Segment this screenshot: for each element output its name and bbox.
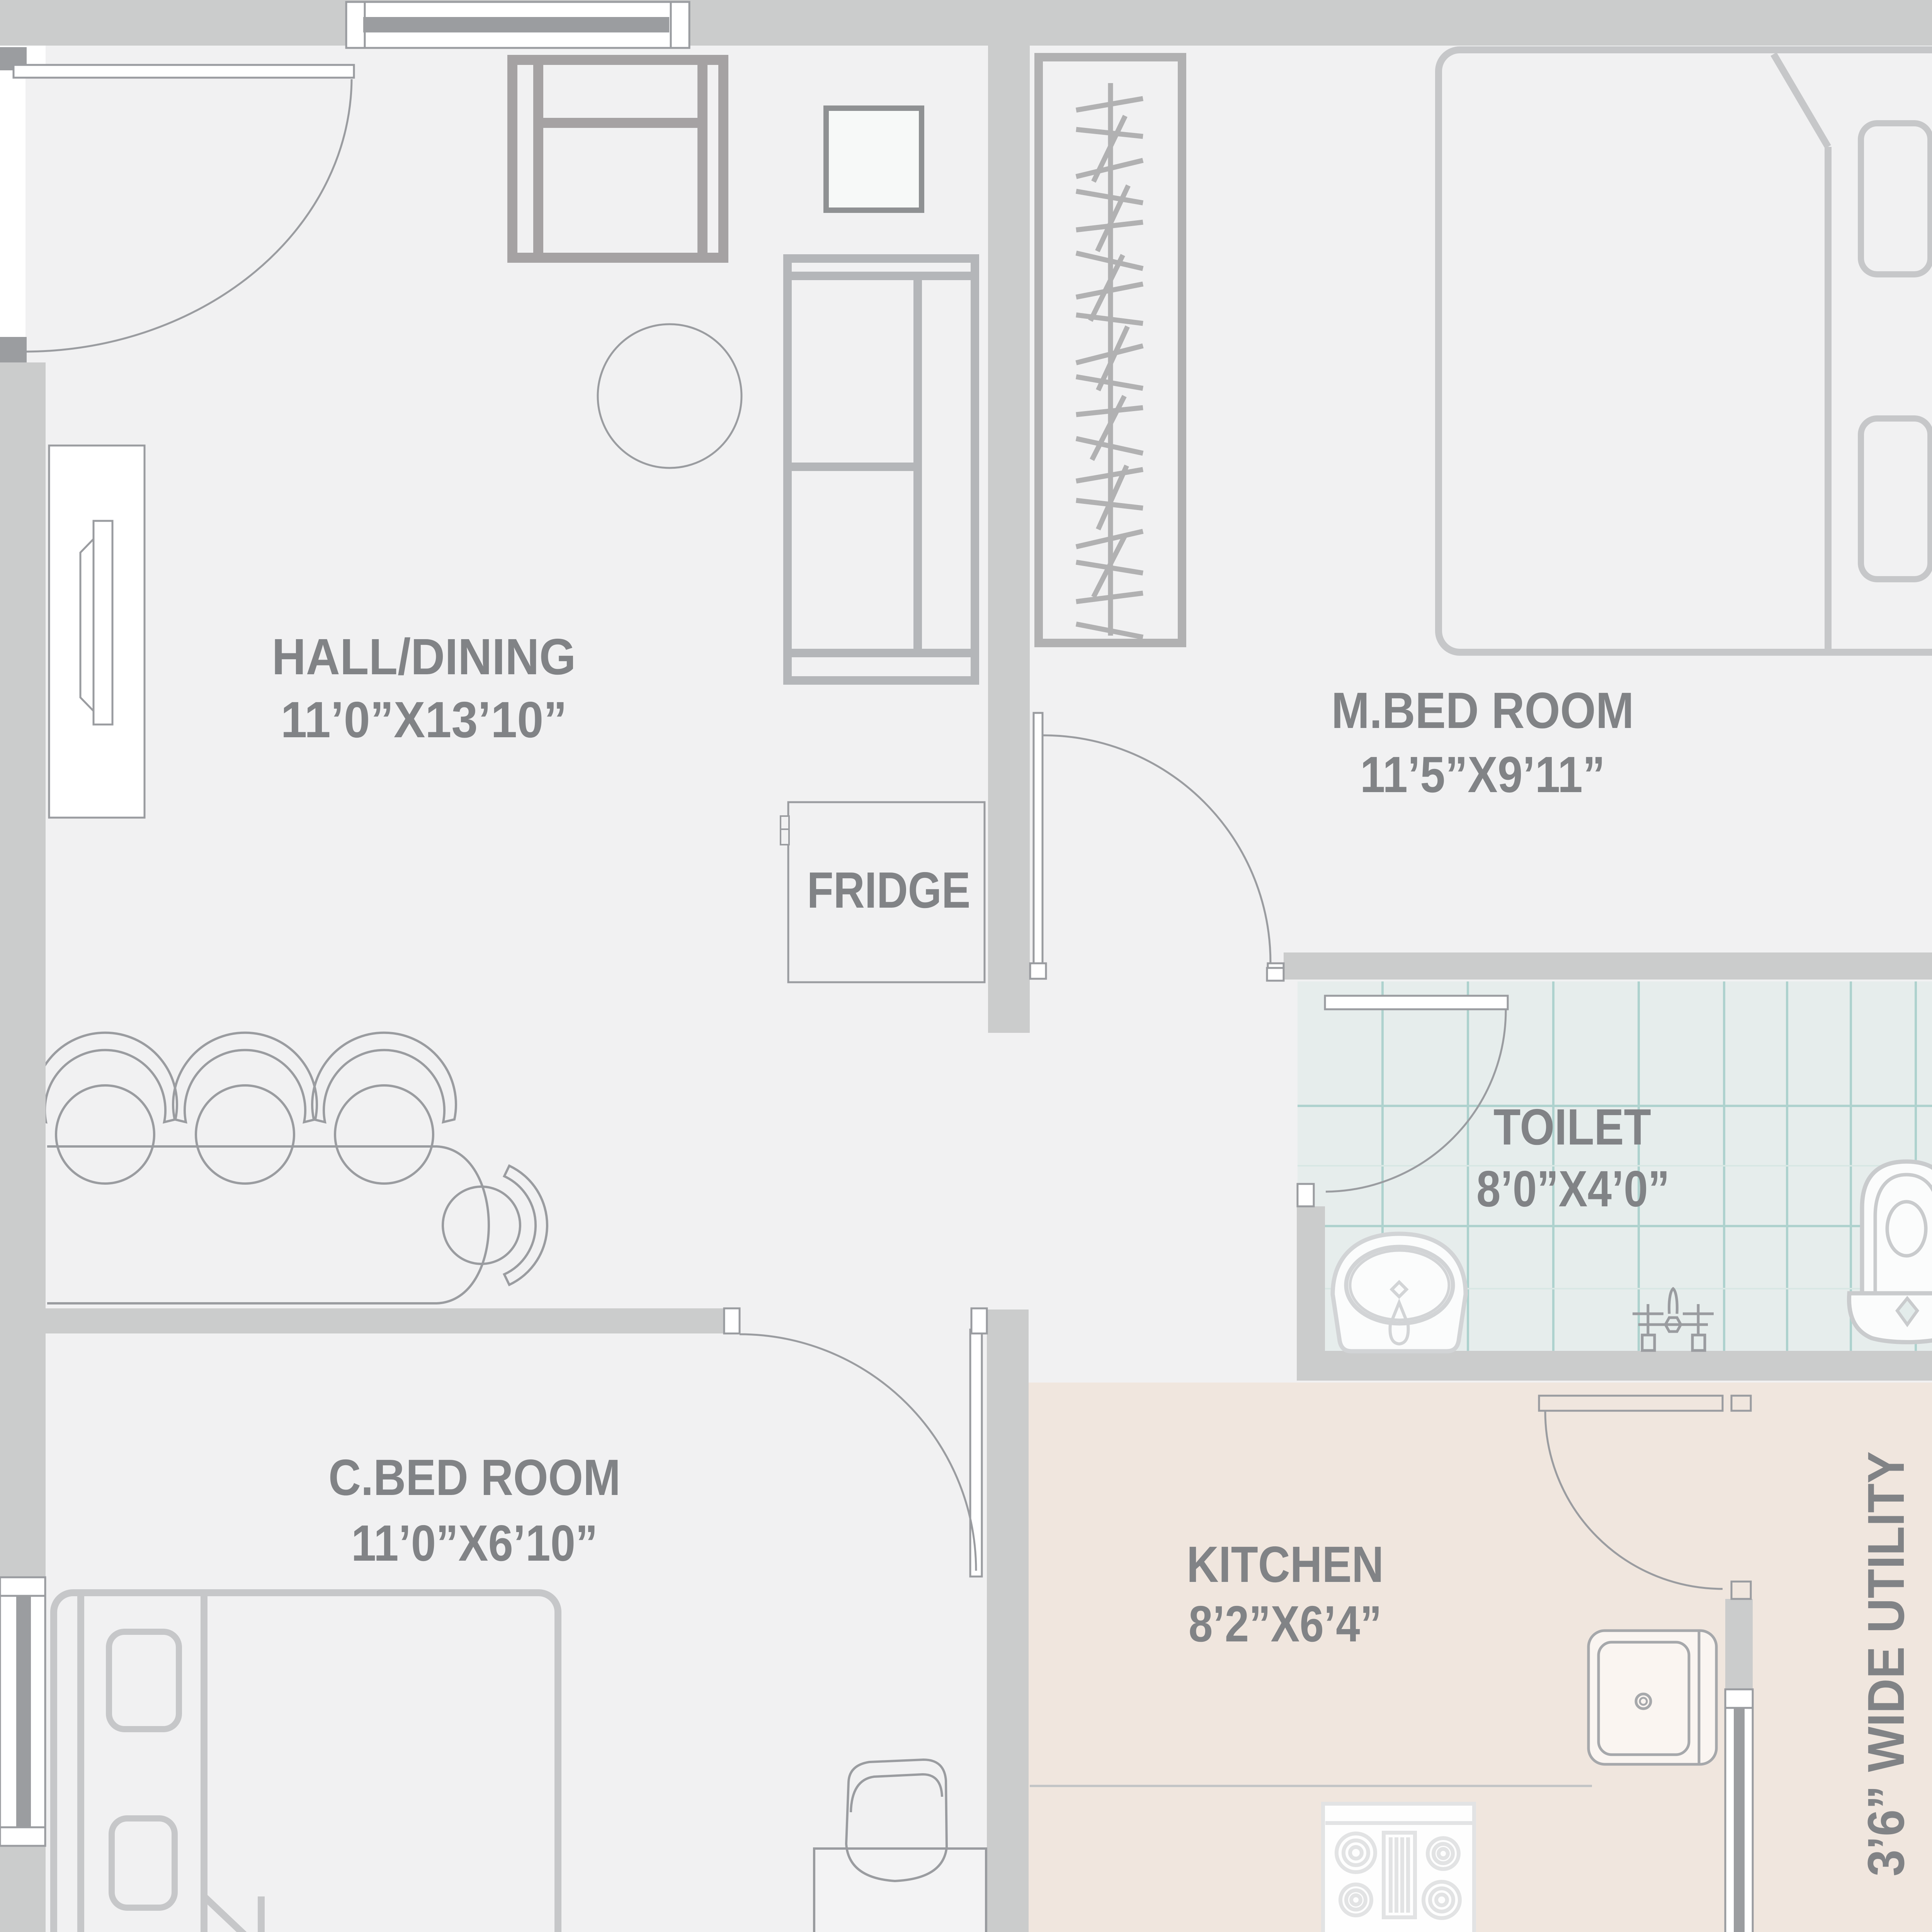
svg-text:11’5”X9’11”: 11’5”X9’11”: [1360, 746, 1605, 803]
svg-text:8’0”X4’0”: 8’0”X4’0”: [1476, 1160, 1670, 1217]
svg-text:3’6” WIDE UTILITY: 3’6” WIDE UTILITY: [1857, 1451, 1915, 1876]
svg-text:M.BED ROOM: M.BED ROOM: [1332, 682, 1634, 739]
svg-text:C.BED ROOM: C.BED ROOM: [328, 1449, 621, 1506]
svg-text:11’0”X13’10”: 11’0”X13’10”: [281, 691, 567, 748]
svg-text:FRIDGE: FRIDGE: [807, 862, 971, 918]
svg-text:8’2”X6’4”: 8’2”X6’4”: [1189, 1595, 1382, 1652]
svg-text:TOILET: TOILET: [1493, 1099, 1651, 1155]
svg-text:HALL/DINING: HALL/DINING: [272, 628, 576, 685]
svg-text:KITCHEN: KITCHEN: [1187, 1536, 1384, 1593]
svg-text:11’0”X6’10”: 11’0”X6’10”: [351, 1515, 598, 1571]
